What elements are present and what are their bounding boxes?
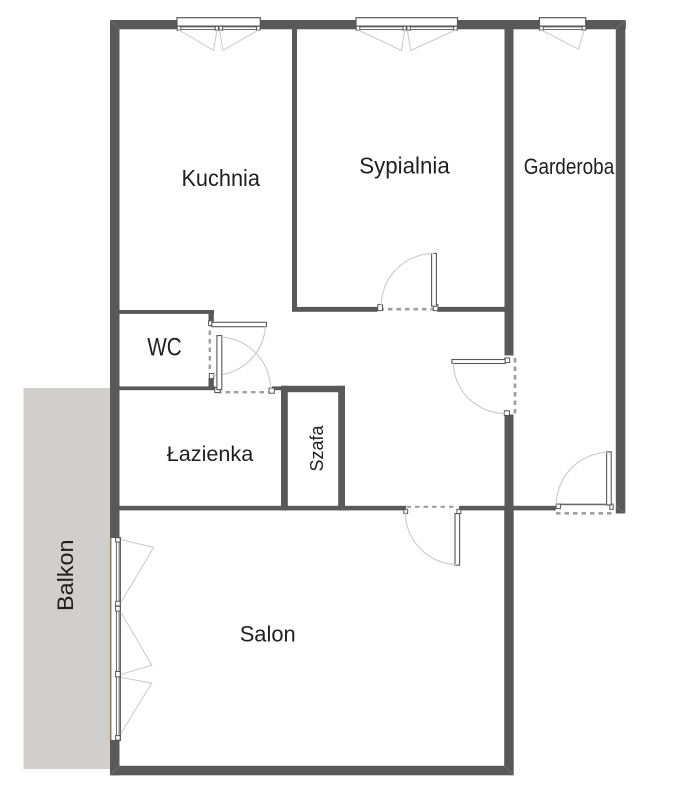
svg-text:Szafa: Szafa [307,425,327,472]
svg-text:Sypialnia: Sypialnia [359,153,450,179]
svg-text:Kuchnia: Kuchnia [181,165,260,191]
svg-text:Garderoba: Garderoba [524,154,615,179]
svg-text:Łazienka: Łazienka [167,442,254,466]
svg-text:Salon: Salon [240,621,296,646]
svg-text:WC: WC [147,333,182,361]
svg-text:Balkon: Balkon [53,540,78,612]
